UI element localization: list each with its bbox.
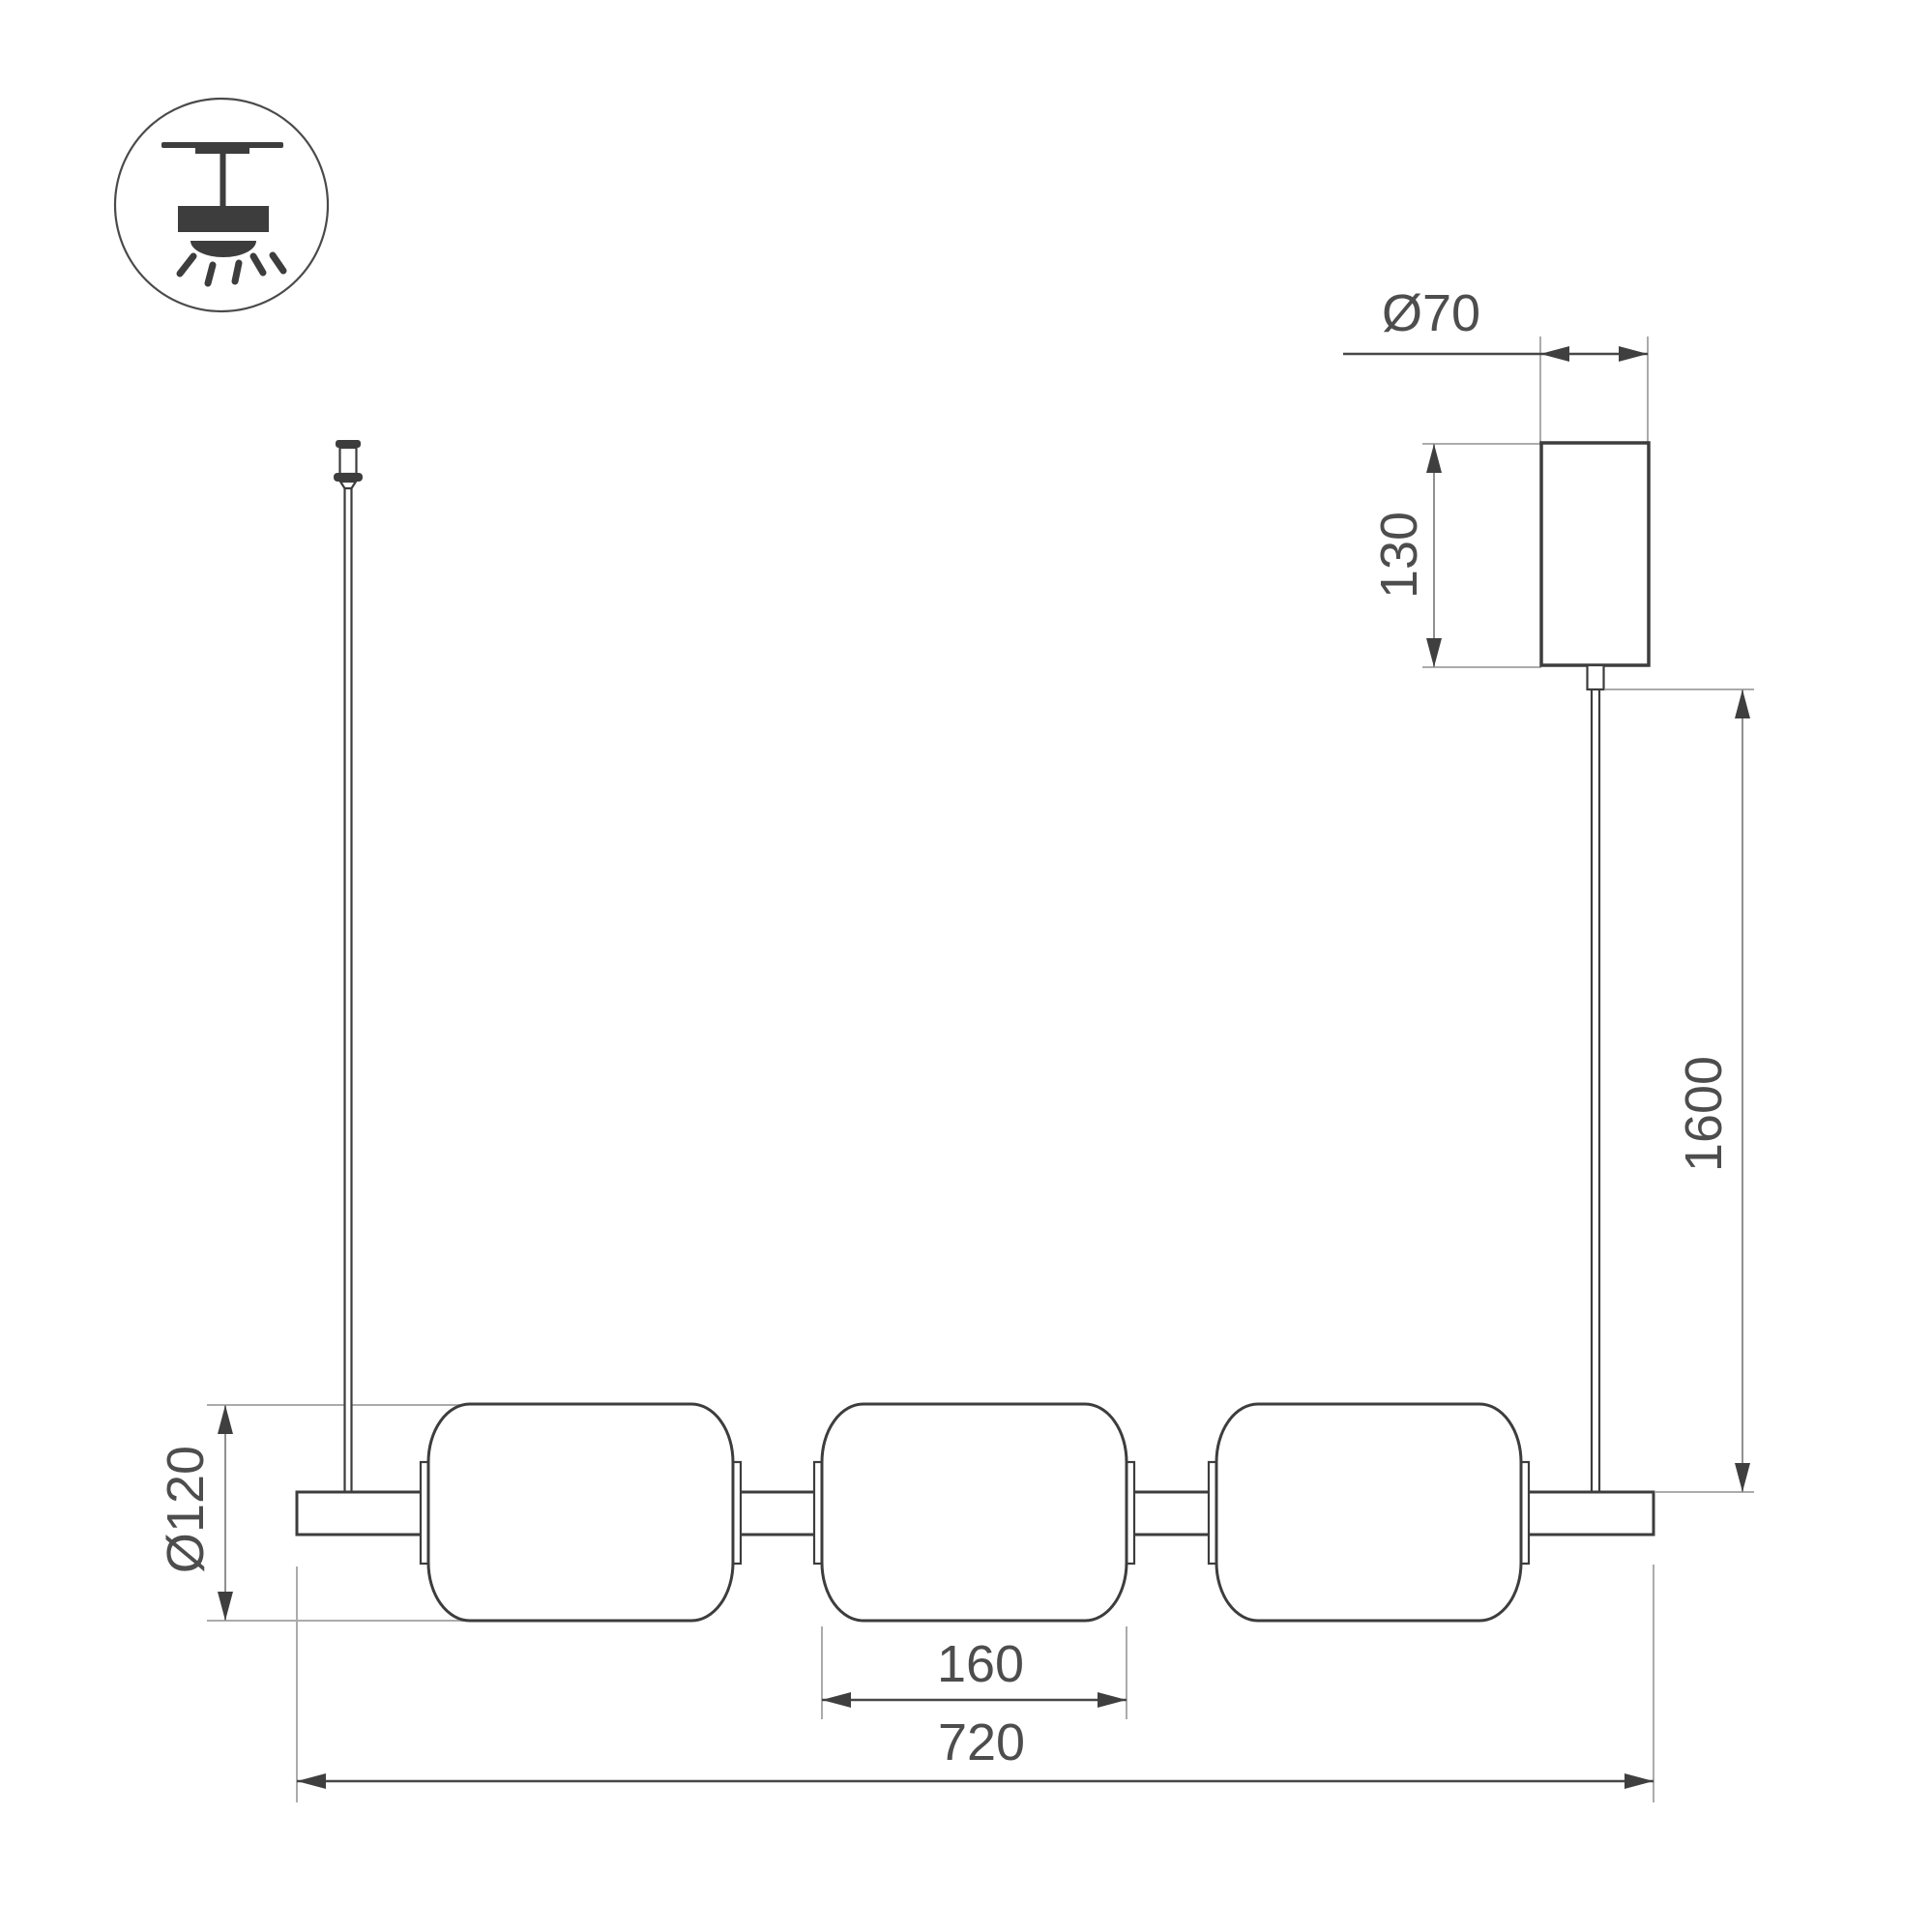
arrowhead-down <box>1426 638 1442 667</box>
arrowhead-up <box>1735 689 1750 718</box>
wire-fitting-bottom-cap <box>334 473 363 482</box>
lamp-shade-2 <box>822 1404 1127 1621</box>
arrowhead-left <box>1540 346 1569 362</box>
pendant-lamp-dimension-drawing: Ø70 130 1600 Ø120 160 720 <box>0 0 1932 1932</box>
icon-lamp-body <box>178 206 269 232</box>
label-suspension-length: 1600 <box>1675 1056 1733 1172</box>
arrowhead-down <box>1735 1463 1750 1492</box>
arrowhead-right <box>1619 346 1648 362</box>
canopy-driver-box <box>1541 443 1649 665</box>
pendant-fixture <box>297 440 1654 1621</box>
ceiling-pendant-mount-icon <box>115 99 328 311</box>
label-canopy-height: 130 <box>1370 512 1428 599</box>
light-ray <box>208 265 213 283</box>
wire-fitting-body <box>340 448 357 474</box>
arrowhead-left <box>822 1692 851 1708</box>
arrowhead-up <box>1426 444 1442 473</box>
wire-fitting-taper <box>340 482 356 488</box>
arrowhead-right <box>1098 1692 1127 1708</box>
wire-fitting-top-cap <box>336 440 361 448</box>
label-shade-diameter: Ø120 <box>157 1446 215 1573</box>
label-shade-width: 160 <box>937 1635 1024 1693</box>
lamp-shade-1 <box>428 1404 733 1621</box>
icon-stem <box>220 154 226 207</box>
suspension-wire-left <box>345 487 352 1494</box>
lamp-shade-3 <box>1216 1404 1521 1621</box>
technical-drawing-page: { "drawing": { "legend_icon": "ceiling-p… <box>0 0 1932 1932</box>
cable-gland <box>1588 665 1604 689</box>
label-fixture-length: 720 <box>938 1713 1025 1771</box>
arrowhead-left <box>297 1773 326 1789</box>
arrowhead-right <box>1625 1773 1654 1789</box>
icon-canopy-plate <box>195 147 249 154</box>
arrowhead-up <box>218 1405 233 1434</box>
label-canopy-diameter: Ø70 <box>1382 284 1480 342</box>
arrowhead-down <box>218 1592 233 1621</box>
suspension-wire-right <box>1592 688 1599 1494</box>
light-ray <box>235 263 239 281</box>
